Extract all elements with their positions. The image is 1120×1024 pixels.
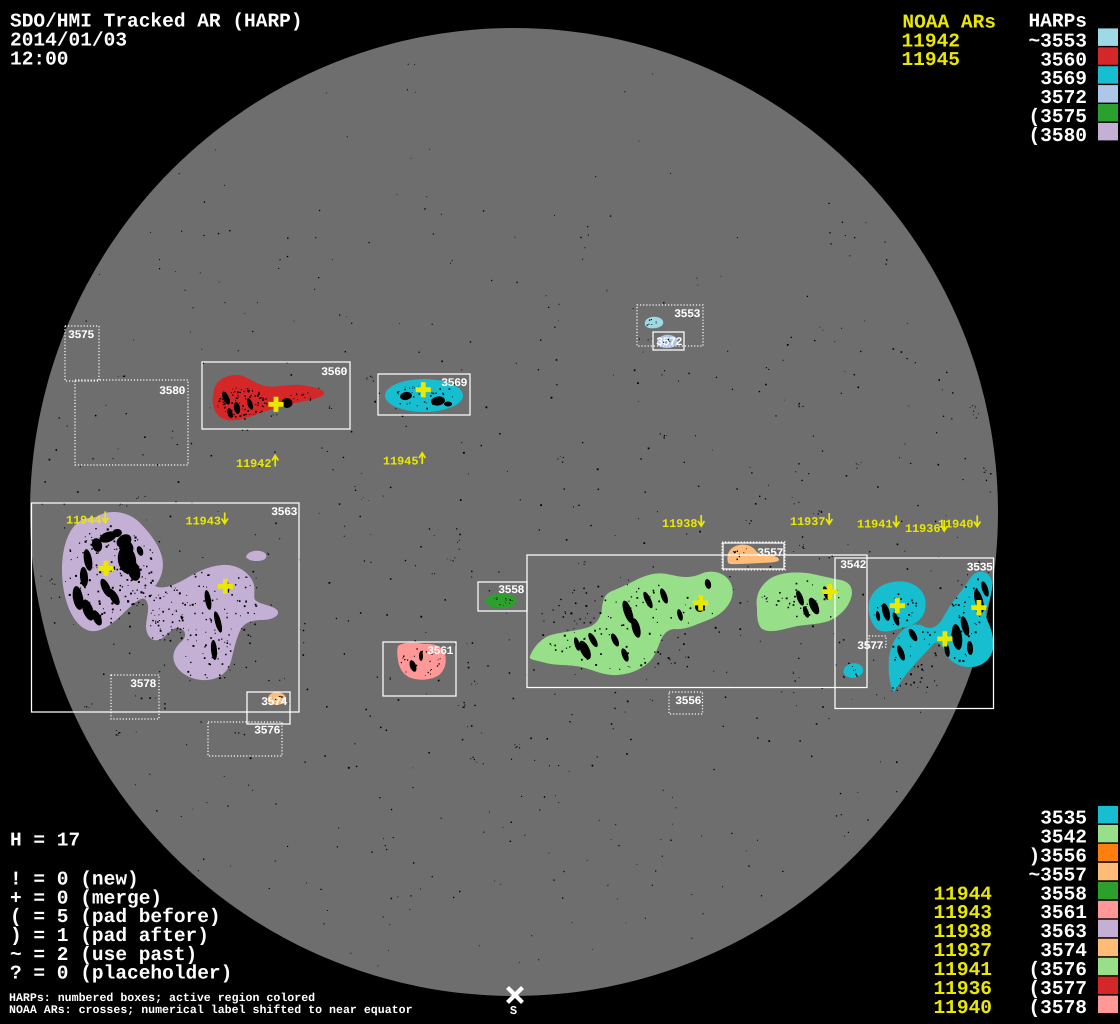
svg-text:S: S	[510, 1004, 517, 1018]
svg-text:11942: 11942	[236, 457, 271, 471]
svg-text:3557: 3557	[757, 547, 783, 560]
svg-text:3561: 3561	[427, 645, 453, 658]
svg-text:3578: 3578	[130, 678, 156, 691]
svg-text:3535: 3535	[967, 562, 993, 575]
svg-text:3569: 3569	[441, 377, 467, 390]
svg-text:? = 0 (placeholder): ? = 0 (placeholder)	[10, 963, 232, 985]
svg-text:11940: 11940	[933, 997, 992, 1019]
svg-text:11943: 11943	[186, 515, 221, 529]
svg-text:H = 17: H = 17	[10, 829, 80, 851]
svg-text:3574: 3574	[261, 696, 287, 709]
svg-text:3558: 3558	[498, 584, 524, 597]
svg-text:11941: 11941	[857, 518, 892, 532]
svg-text:3572: 3572	[656, 336, 682, 349]
svg-text:3576: 3576	[254, 725, 280, 738]
svg-text:11937: 11937	[790, 515, 825, 529]
svg-text:11936: 11936	[905, 522, 940, 536]
svg-text:11945: 11945	[901, 49, 960, 71]
svg-text:11945: 11945	[383, 455, 418, 469]
svg-text:(3578: (3578	[1028, 997, 1087, 1019]
svg-text:3575: 3575	[68, 329, 94, 342]
svg-text:3553: 3553	[674, 308, 700, 321]
svg-text:HARPs: HARPs	[1028, 11, 1087, 33]
svg-text:3563: 3563	[271, 506, 297, 519]
svg-text:3577: 3577	[857, 640, 883, 653]
svg-text:(3580: (3580	[1028, 125, 1087, 147]
svg-text:3556: 3556	[675, 695, 701, 708]
svg-text:3542: 3542	[840, 559, 866, 572]
svg-text:11944: 11944	[66, 514, 101, 528]
svg-text:3580: 3580	[159, 385, 185, 398]
svg-text:12:00: 12:00	[10, 49, 69, 71]
svg-text:NOAA ARs: crosses; numerical l: NOAA ARs: crosses; numerical label shift…	[9, 1004, 413, 1017]
svg-text:11938: 11938	[662, 517, 697, 531]
svg-text:11940: 11940	[938, 518, 973, 532]
svg-text:3560: 3560	[321, 366, 347, 379]
